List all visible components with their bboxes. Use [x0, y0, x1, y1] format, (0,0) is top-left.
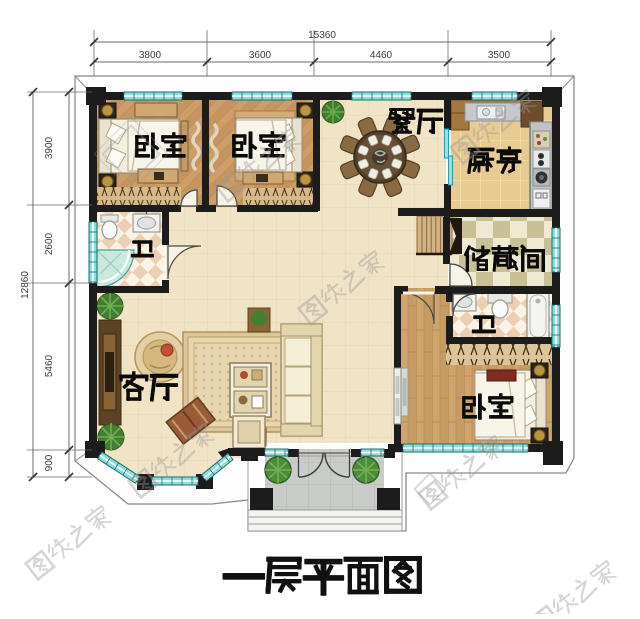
svg-text:3600: 3600	[249, 50, 272, 61]
svg-text:3900: 3900	[44, 136, 55, 159]
svg-text:2600: 2600	[44, 232, 55, 255]
svg-text:3500: 3500	[488, 50, 511, 61]
svg-text:3800: 3800	[139, 50, 162, 61]
svg-text:900: 900	[44, 454, 55, 471]
svg-text:5460: 5460	[44, 354, 55, 377]
svg-text:12860: 12860	[20, 271, 31, 299]
svg-text:15360: 15360	[308, 30, 336, 41]
svg-text:4460: 4460	[370, 50, 393, 61]
